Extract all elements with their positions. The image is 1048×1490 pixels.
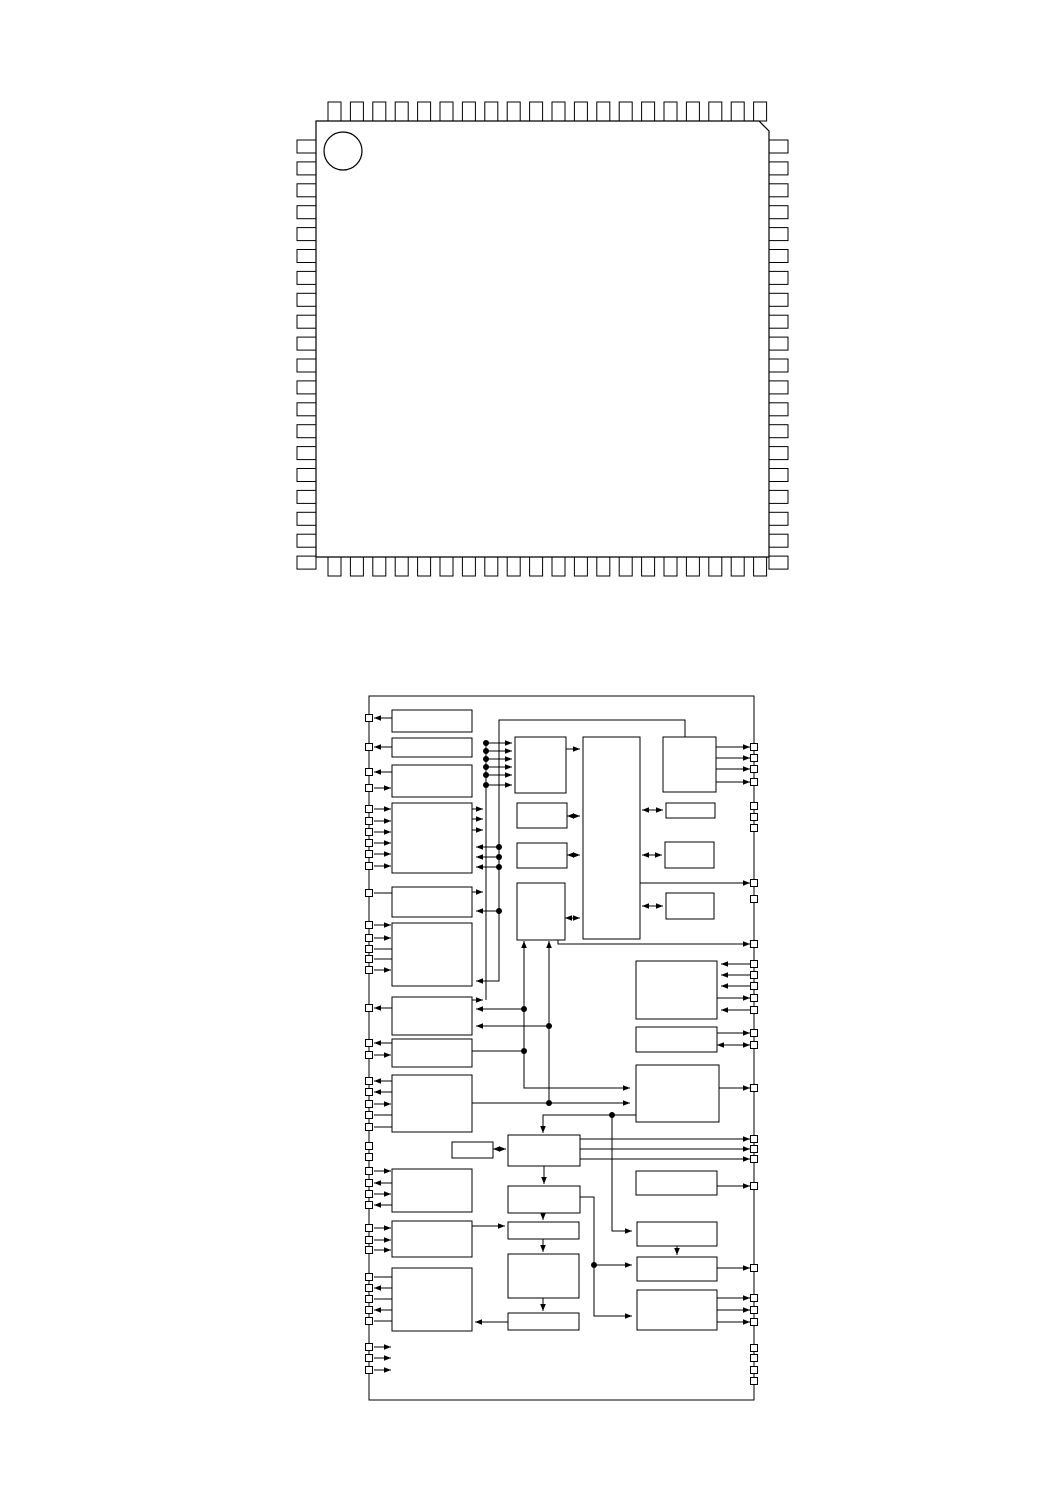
arrowhead [374, 1180, 381, 1186]
package-pin-bottom [507, 557, 520, 576]
package-pin-top [642, 102, 655, 121]
arrowhead [374, 744, 381, 750]
block-rg [636, 1065, 719, 1122]
package-pin-right [769, 490, 788, 503]
block-f [666, 803, 715, 818]
arrowhead [476, 854, 483, 860]
package-pin-top [664, 102, 677, 121]
arrowhead [493, 1146, 500, 1152]
arrowhead [475, 1319, 482, 1325]
arrowhead [743, 1085, 750, 1091]
arrowhead [623, 1085, 630, 1091]
arrowhead [476, 889, 483, 895]
package-pin-bottom [485, 557, 498, 576]
arrowhead [573, 746, 580, 752]
package-pin-left [297, 162, 316, 175]
package-pin-right [769, 271, 788, 284]
arrowhead [743, 1030, 750, 1036]
arrowhead [743, 779, 750, 785]
arrowhead [743, 1146, 750, 1152]
arrowhead [374, 1202, 381, 1208]
edge-pin-left [366, 1237, 373, 1244]
block-b [517, 803, 567, 828]
arrowhead [384, 1367, 391, 1373]
package-pin-right [769, 381, 788, 394]
arrowhead [384, 785, 391, 791]
edge-pin-right [751, 755, 758, 762]
package-pin-left [297, 359, 316, 372]
junction-dot [609, 1112, 615, 1118]
package-pin-right [769, 250, 788, 263]
arrowhead [743, 1265, 750, 1271]
edge-pin-left [366, 1285, 373, 1292]
block-l10 [392, 1169, 472, 1212]
arrowhead [505, 782, 512, 788]
junction-dot [546, 1023, 552, 1029]
arrowhead [384, 1237, 391, 1243]
connector-line [524, 941, 630, 1088]
edge-pin-left [366, 863, 373, 870]
arrowhead [540, 1304, 546, 1311]
arrowhead [476, 806, 483, 812]
arrowhead [505, 756, 512, 762]
arrowhead [374, 1089, 381, 1095]
package-pin-bottom [350, 557, 363, 576]
edge-pin-right [751, 941, 758, 948]
package-pin-bottom [731, 557, 744, 576]
connector-line [612, 1115, 632, 1231]
arrowhead [374, 769, 381, 775]
arrowhead [384, 1344, 391, 1350]
edge-pin-right [751, 1030, 758, 1037]
arrowhead [541, 1177, 547, 1184]
package-pin-top [552, 102, 565, 121]
edge-pin-left [366, 1367, 373, 1374]
arrowhead [743, 880, 750, 886]
edge-pin-left [366, 1078, 373, 1085]
package-pin-bottom [709, 557, 722, 576]
block-c [517, 843, 567, 868]
package-pin-bottom [664, 557, 677, 576]
junction-dot [496, 854, 502, 860]
package-pin-top [395, 102, 408, 121]
arrowhead [374, 1040, 381, 1046]
arrowhead [505, 772, 512, 778]
edge-pin-right [751, 983, 758, 990]
edge-pin-left [366, 1307, 373, 1314]
arrowhead [384, 818, 391, 824]
junction-dot [496, 908, 502, 914]
arrowhead [743, 1136, 750, 1142]
package-pin-right [769, 534, 788, 547]
arrowhead [565, 915, 572, 921]
edge-pin-right [751, 1345, 758, 1352]
arrowhead [656, 807, 663, 813]
package-pin-top [507, 102, 520, 121]
edge-pin-right [751, 1085, 758, 1092]
edge-pin-right [751, 880, 758, 887]
edge-pin-right [751, 896, 758, 903]
package-pin-bottom [418, 557, 431, 576]
edge-pin-left [366, 956, 373, 963]
package-pin-top [574, 102, 587, 121]
junction-dot [483, 756, 489, 762]
edge-pin-left [366, 851, 373, 858]
block-l11 [392, 1221, 472, 1257]
block-m4 [508, 1313, 579, 1330]
block-rb [636, 1027, 717, 1052]
block-d [517, 883, 565, 940]
package-pin-left [297, 228, 316, 241]
package-pin-bottom [754, 557, 767, 576]
package-pin-top [731, 102, 744, 121]
arrowhead [505, 748, 512, 754]
edge-pin-right [751, 1355, 758, 1362]
edge-pin-left [366, 785, 373, 792]
package-pin-bottom [440, 557, 453, 576]
block-r3 [637, 1290, 717, 1330]
block-w [452, 1142, 493, 1158]
block-e [663, 737, 716, 792]
package-pin-bottom [328, 557, 341, 576]
block-l4 [392, 803, 472, 873]
edge-pin-left [366, 1296, 373, 1303]
block-r1 [637, 1222, 717, 1246]
package-pin-left [297, 534, 316, 547]
document-page [0, 0, 1048, 1490]
arrowhead [384, 1247, 391, 1253]
edge-pin-left [366, 935, 373, 942]
edge-pin-right [751, 961, 758, 968]
package-pin-left [297, 490, 316, 503]
package-pin-bottom [373, 557, 386, 576]
junction-dot [496, 864, 502, 870]
edge-pin-left [366, 1052, 373, 1059]
arrowhead [384, 1225, 391, 1231]
block-l7 [392, 997, 472, 1035]
junction-dot [496, 844, 502, 850]
arrowhead [743, 1295, 750, 1301]
edge-pin-right [751, 1156, 758, 1163]
arrowhead [743, 1183, 750, 1189]
package-pin-top [485, 102, 498, 121]
arrowhead [721, 961, 728, 967]
block-m1 [508, 1186, 580, 1213]
edge-pin-left [366, 1344, 373, 1351]
package-pin-right [769, 447, 788, 460]
arrowhead [384, 851, 391, 857]
edge-pin-right [751, 1007, 758, 1014]
junction-dot [483, 782, 489, 788]
edge-pin-left [366, 829, 373, 836]
arrowhead [743, 755, 750, 761]
package-pin-top [709, 102, 722, 121]
arrowhead [476, 978, 483, 984]
package-pin-right [769, 403, 788, 416]
block-r0 [636, 1171, 717, 1195]
edge-pin-left [366, 1040, 373, 1047]
arrowhead [384, 1191, 391, 1197]
junction-dot [483, 748, 489, 754]
package-pin-top [597, 102, 610, 121]
package-pin-bottom [462, 557, 475, 576]
package-pin-bottom [619, 557, 632, 576]
package-pin-top [328, 102, 341, 121]
edge-pin-right [751, 1378, 758, 1385]
edge-pin-right [751, 803, 758, 810]
package-pin-right [769, 206, 788, 219]
block-l3 [392, 765, 472, 797]
package-pin-top [530, 102, 543, 121]
junction-dot [546, 1100, 552, 1106]
block-g [665, 842, 714, 868]
block-a [515, 737, 566, 793]
arrowhead [374, 1307, 381, 1313]
arrowhead [476, 816, 483, 822]
block-l2 [392, 738, 472, 757]
arrowhead [721, 983, 728, 989]
edge-pin-right [751, 1136, 758, 1143]
arrowhead [505, 764, 512, 770]
package-pin-right [769, 293, 788, 306]
edge-pin-left [366, 1225, 373, 1232]
arrowhead [567, 813, 574, 819]
junction-dot [483, 772, 489, 778]
package-pin-left [297, 250, 316, 263]
package-pin-bottom [597, 557, 610, 576]
connector-line [543, 1115, 636, 1133]
package-pin-top [350, 102, 363, 121]
edge-pin-left [366, 1274, 373, 1281]
block-ra [636, 961, 717, 1019]
arrowhead [521, 941, 527, 948]
package-outline-diagram [297, 102, 788, 576]
package-pin-bottom [552, 557, 565, 576]
arrowhead [540, 1126, 546, 1133]
edge-pin-left [366, 1355, 373, 1362]
edge-pin-right [751, 766, 758, 773]
package-pin-left [297, 271, 316, 284]
arrowhead [743, 744, 750, 750]
arrowhead [743, 1319, 750, 1325]
arrowhead [674, 1248, 680, 1255]
edge-pin-left [366, 1318, 373, 1325]
arrowhead [476, 908, 483, 914]
edge-pin-right [751, 972, 758, 979]
arrowhead [384, 922, 391, 928]
arrowhead [625, 1313, 632, 1319]
edge-pin-right [751, 1307, 758, 1314]
arrowhead [374, 715, 381, 721]
package-pin-left [297, 403, 316, 416]
package-pin-right [769, 556, 788, 569]
arrowhead [721, 1007, 728, 1013]
arrowhead [384, 829, 391, 835]
arrowhead [743, 1307, 750, 1313]
block-r2 [637, 1257, 717, 1281]
package-pin-left [297, 512, 316, 525]
package-pin-top [440, 102, 453, 121]
package-body [316, 121, 769, 557]
edge-pin-left [366, 840, 373, 847]
package-pin-top [462, 102, 475, 121]
edge-pin-left [366, 967, 373, 974]
edge-pin-left [366, 922, 373, 929]
edge-pin-left [366, 1154, 373, 1161]
block-m3 [508, 1254, 579, 1298]
arrowhead [655, 852, 662, 858]
edge-pin-left [366, 890, 373, 897]
edge-pin-right [751, 1319, 758, 1326]
arrowhead [384, 1101, 391, 1107]
arrowhead [498, 1223, 505, 1229]
arrowhead [476, 1023, 483, 1029]
edge-pin-right [751, 814, 758, 821]
package-pin-right [769, 140, 788, 153]
arrowhead [573, 852, 580, 858]
arrowhead [623, 1100, 630, 1106]
arrowhead [642, 852, 649, 858]
arrowhead [384, 1355, 391, 1361]
edge-pin-left [366, 715, 373, 722]
arrowhead [743, 1042, 750, 1048]
arrowhead [476, 1006, 483, 1012]
edge-pin-left [366, 1089, 373, 1096]
package-pin-left [297, 447, 316, 460]
edge-pin-right [751, 744, 758, 751]
package-pin-bottom [642, 557, 655, 576]
edge-pin-right [751, 825, 758, 832]
arrowhead [743, 1156, 750, 1162]
arrowhead [374, 1078, 381, 1084]
edge-pin-left [366, 818, 373, 825]
arrowhead [540, 1245, 546, 1252]
package-pin-left [297, 315, 316, 328]
edge-pin-right [751, 995, 758, 1002]
block-l1 [392, 710, 472, 732]
package-pin-right [769, 469, 788, 482]
package-pin-bottom [574, 557, 587, 576]
package-pin-top [619, 102, 632, 121]
block-m2 [508, 1222, 579, 1239]
package-pin-left [297, 293, 316, 306]
package-pin-top [418, 102, 431, 121]
edge-pin-left [366, 1180, 373, 1187]
edge-pin-right [751, 1042, 758, 1049]
edge-pin-right [751, 1183, 758, 1190]
package-pin-top [373, 102, 386, 121]
arrowhead [384, 863, 391, 869]
edge-pin-left [366, 1247, 373, 1254]
arrowhead [642, 807, 649, 813]
arrowhead [656, 903, 663, 909]
arrowhead [499, 1146, 506, 1152]
block-m0 [508, 1135, 580, 1166]
arrowhead [476, 844, 483, 850]
connector-line [558, 940, 750, 944]
edge-pin-left [366, 1101, 373, 1108]
block-l8 [392, 1039, 472, 1067]
package-pin-left [297, 469, 316, 482]
block-central [583, 737, 640, 939]
edge-pin-left [366, 1191, 373, 1198]
package-pin-left [297, 184, 316, 197]
edge-pin-left [366, 946, 373, 953]
arrowhead [384, 967, 391, 973]
junction-dot [521, 1048, 527, 1054]
arrowhead [717, 1042, 724, 1048]
package-pin-right [769, 162, 788, 175]
package-pin-right [769, 184, 788, 197]
package-pin-right [769, 228, 788, 241]
edge-pin-left [366, 806, 373, 813]
arrowhead [374, 1005, 381, 1011]
edge-pin-left [366, 744, 373, 751]
junction-dot [521, 1006, 527, 1012]
edge-pin-left [366, 1168, 373, 1175]
package-pin-right [769, 425, 788, 438]
block-l12 [392, 1268, 472, 1331]
package-pin-right [769, 359, 788, 372]
package-pin-right [769, 315, 788, 328]
arrowhead [384, 1052, 391, 1058]
page-svg [0, 0, 1048, 1490]
arrowhead [505, 740, 512, 746]
arrowhead [743, 941, 750, 947]
arrowhead [573, 915, 580, 921]
package-pin-left [297, 425, 316, 438]
block-l6 [392, 923, 472, 986]
edge-pin-left [366, 1124, 373, 1131]
package-pin-bottom [395, 557, 408, 576]
package-pin-left [297, 337, 316, 350]
edge-pin-right [751, 1265, 758, 1272]
arrowhead [625, 1228, 632, 1234]
arrowhead [573, 813, 580, 819]
edge-pin-left [366, 1112, 373, 1119]
edge-pin-right [751, 779, 758, 786]
edge-pin-left [366, 1202, 373, 1209]
arrowhead [374, 1285, 381, 1291]
junction-dot [483, 740, 489, 746]
edge-pin-left [366, 769, 373, 776]
edge-pin-right [751, 1367, 758, 1374]
arrowhead [540, 1213, 546, 1220]
connector-line [580, 1197, 632, 1316]
arrowhead [743, 766, 750, 772]
edge-pin-right [751, 1295, 758, 1302]
package-pin-bottom [686, 557, 699, 576]
block-h [666, 893, 714, 919]
pin1-indicator-circle [324, 132, 362, 170]
junction-dot [483, 764, 489, 770]
arrowhead [476, 827, 483, 833]
package-pin-top [686, 102, 699, 121]
arrowhead [743, 995, 750, 1001]
arrowhead [567, 852, 574, 858]
block-l9 [392, 1075, 472, 1132]
arrowhead [721, 972, 728, 978]
package-pin-bottom [530, 557, 543, 576]
arrowhead [384, 935, 391, 941]
package-pin-left [297, 381, 316, 394]
package-pin-left [297, 140, 316, 153]
arrowhead [384, 1168, 391, 1174]
arrowhead [384, 840, 391, 846]
edge-pin-left [366, 1143, 373, 1150]
arrowhead [625, 1262, 632, 1268]
arrowhead [476, 997, 483, 1003]
